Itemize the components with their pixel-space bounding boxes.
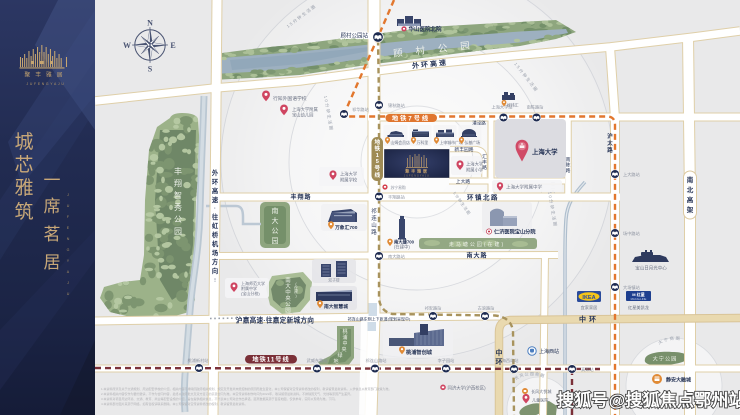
svg-text:桃浦新村站: 桃浦新村站 — [188, 357, 209, 364]
svg-text:南大中央公园: 南大中央公园 — [285, 276, 291, 314]
svg-text:N: N — [147, 19, 153, 28]
svg-text:E: E — [170, 41, 175, 50]
svg-text:上海大学: 上海大学 — [532, 147, 558, 156]
svg-text:S: S — [148, 65, 153, 74]
svg-text:万科里: 万科里 — [417, 140, 429, 145]
svg-text:环镇北路: 环镇北路 — [467, 193, 499, 202]
svg-text:走马塘公园(在建): 走马塘公园(在建) — [449, 241, 505, 248]
svg-text:南大路站: 南大路站 — [388, 253, 405, 260]
svg-text:宝山日月光中心: 宝山日月光中心 — [635, 265, 667, 272]
svg-text:万象汇700: 万象汇700 — [334, 224, 358, 231]
svg-text:李子园站: 李子园站 — [438, 357, 455, 364]
svg-text:沪嘉高速·往嘉定新城方向: 沪嘉高速·往嘉定新城方向 — [236, 315, 314, 324]
svg-text:祁连山路东侧上下匝道(规划呈现中): 祁连山路东侧上下匝道(规划呈现中) — [348, 316, 411, 322]
svg-text:外环高速·往虹桥机场方向⋮: 外环高速·往虹桥机场方向⋮ — [212, 168, 219, 283]
svg-text:W: W — [123, 41, 131, 50]
svg-text:地铁11号线: 地铁11号线 — [252, 356, 289, 364]
svg-text:JUFENGYAJU: JUFENGYAJU — [27, 82, 66, 86]
svg-text:祁连山路站: 祁连山路站 — [366, 357, 387, 364]
svg-text:武威东路站: 武威东路站 — [307, 357, 328, 364]
svg-text:祁华路站: 祁华路站 — [352, 106, 369, 113]
svg-text:上海大学附属学校: 上海大学附属学校 — [340, 171, 358, 184]
svg-text:搜狐号@搜狐焦点鄂州站: 搜狐号@搜狐焦点鄂州站 — [557, 390, 740, 410]
svg-text:华山医院北院: 华山医院北院 — [409, 25, 443, 33]
svg-text:聚丰雅居: 聚丰雅居 — [404, 167, 429, 173]
svg-text:上大路: 上大路 — [456, 178, 471, 185]
svg-text:大宁公园: 大宁公园 — [653, 355, 678, 363]
svg-text:聚丰雅居: 聚丰雅居 — [24, 71, 67, 79]
svg-text:同济大学(沪西校区): 同济大学(沪西校区) — [448, 384, 487, 391]
svg-text:2.本资料相关内容仅作为要约邀请，不作为合同内容，最终以政府: 2.本资料相关内容仅作为要约邀请，不作为合同内容，最终以政府批文及双方签订的买卖… — [101, 391, 353, 396]
svg-text:4.本资料部分图片来源于网络，如有侵权请联系删除。本公司保留: 4.本资料部分图片来源于网络，如有侵权请联系删除。本公司保留对宣传资料修改的权利… — [101, 401, 248, 406]
svg-text:中环: 中环 — [579, 315, 599, 324]
svg-text:南陈路站: 南陈路站 — [527, 104, 544, 111]
svg-text:地铁7号线: 地铁7号线 — [392, 114, 430, 122]
svg-text:MACALLINE: MACALLINE — [631, 297, 647, 301]
svg-text:山姆会员店: 山姆会员店 — [391, 140, 411, 145]
svg-text:弘基广场: 弘基广场 — [465, 140, 481, 145]
svg-text:JUFENGYAJU: JUFENGYAJU — [404, 175, 430, 178]
svg-text:上海大学附属小学: 上海大学附属小学 — [466, 161, 484, 174]
svg-text:顾村公园站: 顾村公园站 — [340, 32, 368, 40]
svg-text:经纬汇: 经纬汇 — [507, 103, 519, 108]
svg-text:沪太路: 沪太路 — [607, 132, 613, 154]
svg-text:南陈路: 南陈路 — [566, 156, 571, 174]
svg-text:南大路: 南大路 — [466, 252, 487, 260]
svg-text:仁济医院宝山分院: 仁济医院宝山分院 — [494, 228, 536, 236]
svg-text:长风大悦城: 长风大悦城 — [531, 388, 551, 394]
svg-text:祁连山路: 祁连山路 — [371, 207, 377, 236]
svg-text:IKEA: IKEA — [582, 295, 595, 301]
svg-text:儿童医院: 儿童医院 — [532, 397, 548, 403]
svg-text:场中路站: 场中路站 — [623, 230, 640, 237]
svg-text:行知外国语学校: 行知外国语学校 — [273, 95, 307, 102]
svg-text:宜家家居: 宜家家居 — [581, 304, 598, 311]
svg-text:锦秋路站: 锦秋路站 — [388, 102, 405, 109]
svg-text:3.本资料对项目周边环境、交通、教育、商业等配套设施的介绍，: 3.本资料对项目周边环境、交通、教育、商业等配套设施的介绍，旨在提供相关信息，不… — [101, 396, 338, 401]
svg-text:红星美凯龙: 红星美凯龙 — [628, 304, 650, 311]
svg-text:南大智慧城: 南大智慧城 — [324, 303, 348, 310]
svg-text:上海大学附属中学: 上海大学附属中学 — [506, 184, 542, 191]
svg-text:双子楼: 双子楼 — [328, 278, 340, 283]
svg-text:古浪路站: 古浪路站 — [478, 305, 495, 312]
svg-text:上海西站: 上海西站 — [539, 348, 559, 355]
svg-text:上大路站: 上大路站 — [623, 171, 640, 178]
svg-text:丰翔路: 丰翔路 — [290, 193, 311, 201]
svg-text:静安大融城: 静安大融城 — [666, 377, 691, 384]
svg-text:桃浦智创城: 桃浦智创城 — [406, 348, 433, 356]
svg-text:苏宁易购: 苏宁易购 — [391, 185, 406, 190]
svg-text:祁安路站: 祁安路站 — [425, 305, 442, 312]
svg-text:大场镇站: 大场镇站 — [623, 284, 640, 291]
svg-text:丰翔路站: 丰翔路站 — [388, 194, 405, 201]
svg-text:新丰园路: 新丰园路 — [454, 146, 473, 153]
svg-text:真如站: 真如站 — [581, 366, 594, 373]
svg-text:1.本资料所涉及关于交通规划、周边配套学校的介绍，相关内容不: 1.本资料所涉及关于交通规划、周边配套学校的介绍，相关内容不排除因政府相关规划、… — [101, 386, 392, 391]
